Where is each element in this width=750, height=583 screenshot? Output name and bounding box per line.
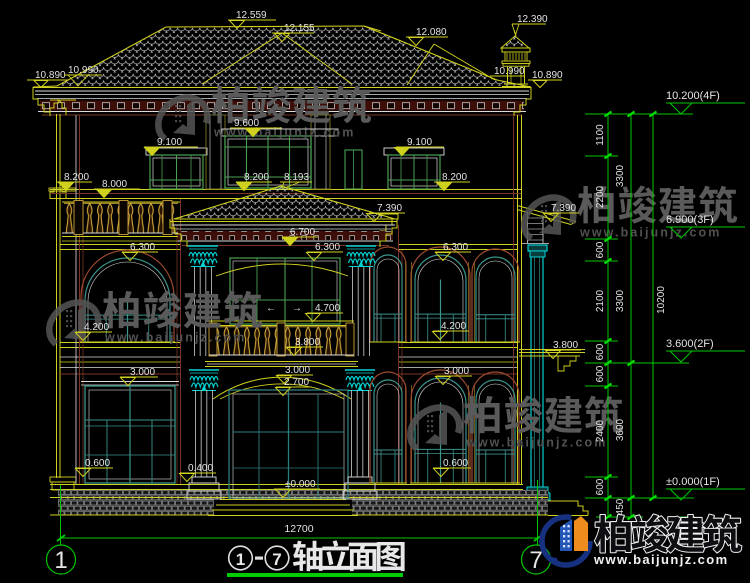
svg-text:10.990: 10.990 [494,66,525,77]
svg-text:www.baijunjz.com: www.baijunjz.com [593,552,729,567]
svg-text:3.800: 3.800 [553,340,578,351]
svg-text:6.300: 6.300 [315,242,340,253]
svg-text:9.100: 9.100 [407,137,432,148]
svg-text:1100: 1100 [595,124,606,146]
svg-text:4.200: 4.200 [84,322,109,333]
svg-text:8.200: 8.200 [442,172,467,183]
svg-text:2100: 2100 [595,289,606,312]
svg-text:3600: 3600 [615,418,626,441]
svg-text:600: 600 [595,343,606,360]
svg-text:0.400: 0.400 [188,463,213,474]
svg-text:0.600: 0.600 [443,458,468,469]
svg-text:6.900(3F): 6.900(3F) [666,214,714,226]
svg-text:450: 450 [615,498,626,515]
svg-text:12700: 12700 [284,523,313,535]
svg-text:3300: 3300 [615,289,626,312]
svg-text:600: 600 [595,478,606,495]
svg-text:7.390: 7.390 [377,203,402,214]
svg-text:6.300: 6.300 [130,242,155,253]
svg-text:4.200: 4.200 [441,321,466,332]
svg-text:8.200: 8.200 [244,172,269,183]
svg-text:8.000: 8.000 [102,179,127,190]
svg-text:3300: 3300 [615,164,626,187]
svg-text:2.700: 2.700 [284,377,309,388]
svg-text:9.600: 9.600 [234,118,259,129]
svg-text:8.193: 8.193 [284,172,309,183]
svg-text:±0.000: ±0.000 [285,479,316,490]
svg-text:3.800: 3.800 [295,337,320,348]
svg-text:8.200: 8.200 [64,172,89,183]
svg-text:10.990: 10.990 [68,65,99,76]
svg-text:3.000: 3.000 [285,365,310,376]
svg-text:www.baijunjz.com: www.baijunjz.com [579,226,721,240]
svg-text:7: 7 [529,547,542,574]
svg-text:2200: 2200 [595,185,606,208]
svg-text:12.559: 12.559 [236,10,267,21]
svg-text:12.390: 12.390 [517,14,548,25]
svg-text:0.600: 0.600 [85,458,110,469]
svg-text:10200: 10200 [656,286,667,314]
svg-text:6.700: 6.700 [290,227,315,238]
svg-text:600: 600 [595,365,606,382]
svg-text:3.000: 3.000 [130,367,155,378]
svg-text:www.baijunjz.com: www.baijunjz.com [465,436,607,450]
svg-text:3.000: 3.000 [444,366,469,377]
svg-text:2400: 2400 [595,419,606,442]
svg-text:→: → [292,303,302,314]
svg-text:7: 7 [272,550,281,569]
svg-text:1: 1 [236,550,245,569]
svg-text:9.100: 9.100 [157,137,182,148]
svg-text:1: 1 [54,547,67,574]
svg-text:←: ← [266,303,276,314]
svg-text:10.890: 10.890 [532,70,563,81]
svg-text:www.baijunjz.com: www.baijunjz.com [104,331,246,345]
svg-text:12.080: 12.080 [416,27,447,38]
svg-text:7.390: 7.390 [551,203,576,214]
svg-text:6.300: 6.300 [443,242,468,253]
svg-text:12.155: 12.155 [284,23,315,34]
svg-text:4.700: 4.700 [315,303,340,314]
svg-text:10.200(4F): 10.200(4F) [666,90,720,102]
svg-text:600: 600 [595,241,606,258]
svg-text:±0.000(1F): ±0.000(1F) [666,476,720,488]
svg-text:3.600(2F): 3.600(2F) [666,338,714,350]
svg-text:10.890: 10.890 [35,70,66,81]
